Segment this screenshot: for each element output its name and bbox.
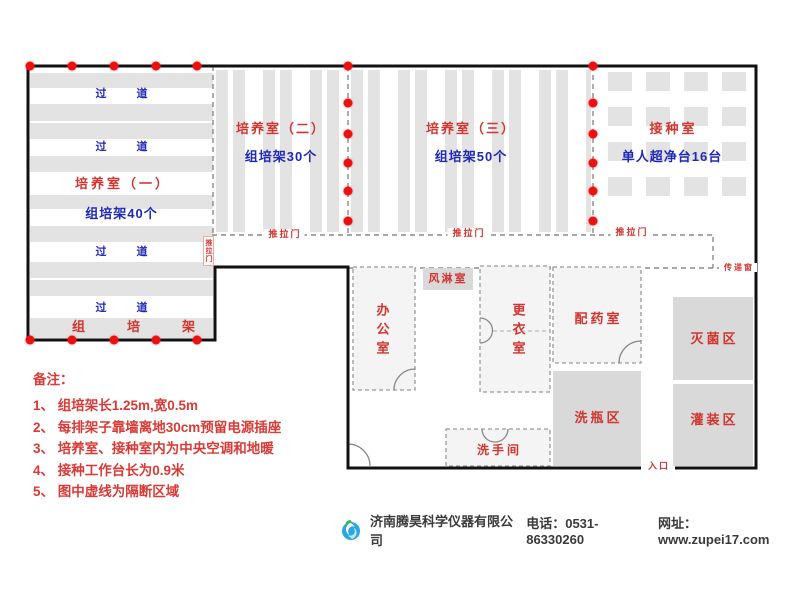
workbench xyxy=(608,72,632,91)
wall-anchor-dot xyxy=(68,336,77,345)
bench-count-inoculation: 单人超净台16台 xyxy=(593,150,751,165)
door-arc xyxy=(480,318,492,343)
notes-title: 备注： xyxy=(33,368,281,388)
workbench xyxy=(722,72,746,91)
company-logo-icon xyxy=(341,519,361,541)
wall-anchor-dot xyxy=(152,336,161,345)
room-title-restroom: 洗手间 xyxy=(446,444,550,458)
pass-window-label: 传递窗 xyxy=(719,263,757,272)
sliding-door-label: 推拉门 xyxy=(447,228,488,238)
sliding-door-label: 推拉门 xyxy=(263,229,304,239)
wall-anchor-dot xyxy=(193,336,202,345)
note-item: 2、 每排架子靠墙离地30cm预留电源插座 xyxy=(33,417,281,439)
company-name: 济南腾昊科学仪器有限公司 xyxy=(370,511,517,549)
floor-plan: 过道 过道 培养室（一） 组培架40个 过道 过道 组培架 培养室（二） 组培架… xyxy=(0,0,800,600)
note-item: 1、 组培架长1.25m,宽0.5m xyxy=(33,395,281,417)
room-title-office: 办公室 xyxy=(374,303,389,360)
company-website: 网址：www.zupei17.com xyxy=(658,513,800,547)
workbench xyxy=(722,177,746,196)
wall-anchor-dot xyxy=(68,62,77,71)
wall-anchor-dot xyxy=(589,62,598,71)
door-arc xyxy=(482,429,508,442)
shelf-row xyxy=(30,73,213,88)
wall-anchor-dot xyxy=(152,62,161,71)
workbench xyxy=(646,72,670,91)
footer: 济南腾昊科学仪器有限公司 电话：0531-86330260 网址：www.zup… xyxy=(341,511,800,549)
note-item: 5、 图中虚线为隔断区域 xyxy=(33,481,281,503)
note-item: 3、 培养室、接种室内为中央空调和地暖 xyxy=(33,438,281,460)
wall-anchor-dot xyxy=(589,217,598,226)
shelf-row xyxy=(30,156,213,172)
rack-count-culture2: 组培架30个 xyxy=(216,150,346,165)
door-arc xyxy=(348,444,370,466)
wall-anchor-dot xyxy=(589,187,598,196)
sliding-door-label: 推拉门 xyxy=(610,227,651,237)
zone-title-sterilization: 灭菌区 xyxy=(673,332,753,347)
zone-title-filling: 灌装区 xyxy=(673,413,753,428)
wall-anchor-dot xyxy=(26,336,35,345)
door-arc xyxy=(394,369,415,390)
wall-anchor-dot xyxy=(344,159,353,168)
wall-anchor-dot xyxy=(344,187,353,196)
room-title-air-shower: 风淋室 xyxy=(423,268,473,290)
door-arc xyxy=(619,341,641,363)
shelf-row xyxy=(30,280,213,296)
notes-block: 备注： 1、 组培架长1.25m,宽0.5m 2、 每排架子靠墙离地30cm预留… xyxy=(33,368,281,503)
wall-anchor-dot xyxy=(344,99,353,108)
shelf-row xyxy=(30,262,213,278)
rack-count-culture3: 组培架50个 xyxy=(351,150,591,165)
rack-count-culture1: 组培架40个 xyxy=(30,207,213,222)
shelf-row xyxy=(30,104,213,121)
room-title-culture1: 培养室（一） xyxy=(30,177,213,192)
company-phone: 电话：0531-86330260 xyxy=(526,513,649,547)
entrance-label: 入口 xyxy=(643,461,673,471)
room-title-culture2: 培养室（二） xyxy=(216,122,346,137)
shelf-row xyxy=(30,123,213,139)
aisle-label: 过道 xyxy=(30,302,213,315)
wall-anchor-dot xyxy=(110,62,119,71)
wall-anchor-dot xyxy=(344,217,353,226)
aisle-label: 过道 xyxy=(30,88,213,101)
workbench xyxy=(684,72,708,91)
rack-row-label: 组培架 xyxy=(30,320,213,335)
room-title-dispensing: 配药室 xyxy=(553,312,641,327)
room-title-culture3: 培养室（三） xyxy=(351,122,591,137)
shelf-row xyxy=(30,226,213,242)
wall-anchor-dot xyxy=(589,159,598,168)
wall-anchor-dot xyxy=(193,62,202,71)
note-item: 4、 接种工作台长为0.9米 xyxy=(33,460,281,482)
wall-anchor-dot xyxy=(26,62,35,71)
wall-anchor-dot xyxy=(344,62,353,71)
wall-anchor-dot xyxy=(589,130,598,139)
room-title-changing: 更衣室 xyxy=(510,303,525,360)
aisle-label: 过道 xyxy=(30,246,213,259)
sliding-door-label-vertical: 推拉门 xyxy=(203,236,214,266)
wall-anchor-dot xyxy=(344,130,353,139)
room-title-inoculation: 接种室 xyxy=(593,122,751,137)
wall-anchor-dot xyxy=(589,99,598,108)
aisle-label: 过道 xyxy=(30,141,213,154)
workbench xyxy=(608,177,632,196)
workbench xyxy=(684,177,708,196)
zone-title-bottle-washing: 洗瓶区 xyxy=(553,411,641,426)
wall-anchor-dot xyxy=(110,336,119,345)
workbench xyxy=(646,177,670,196)
